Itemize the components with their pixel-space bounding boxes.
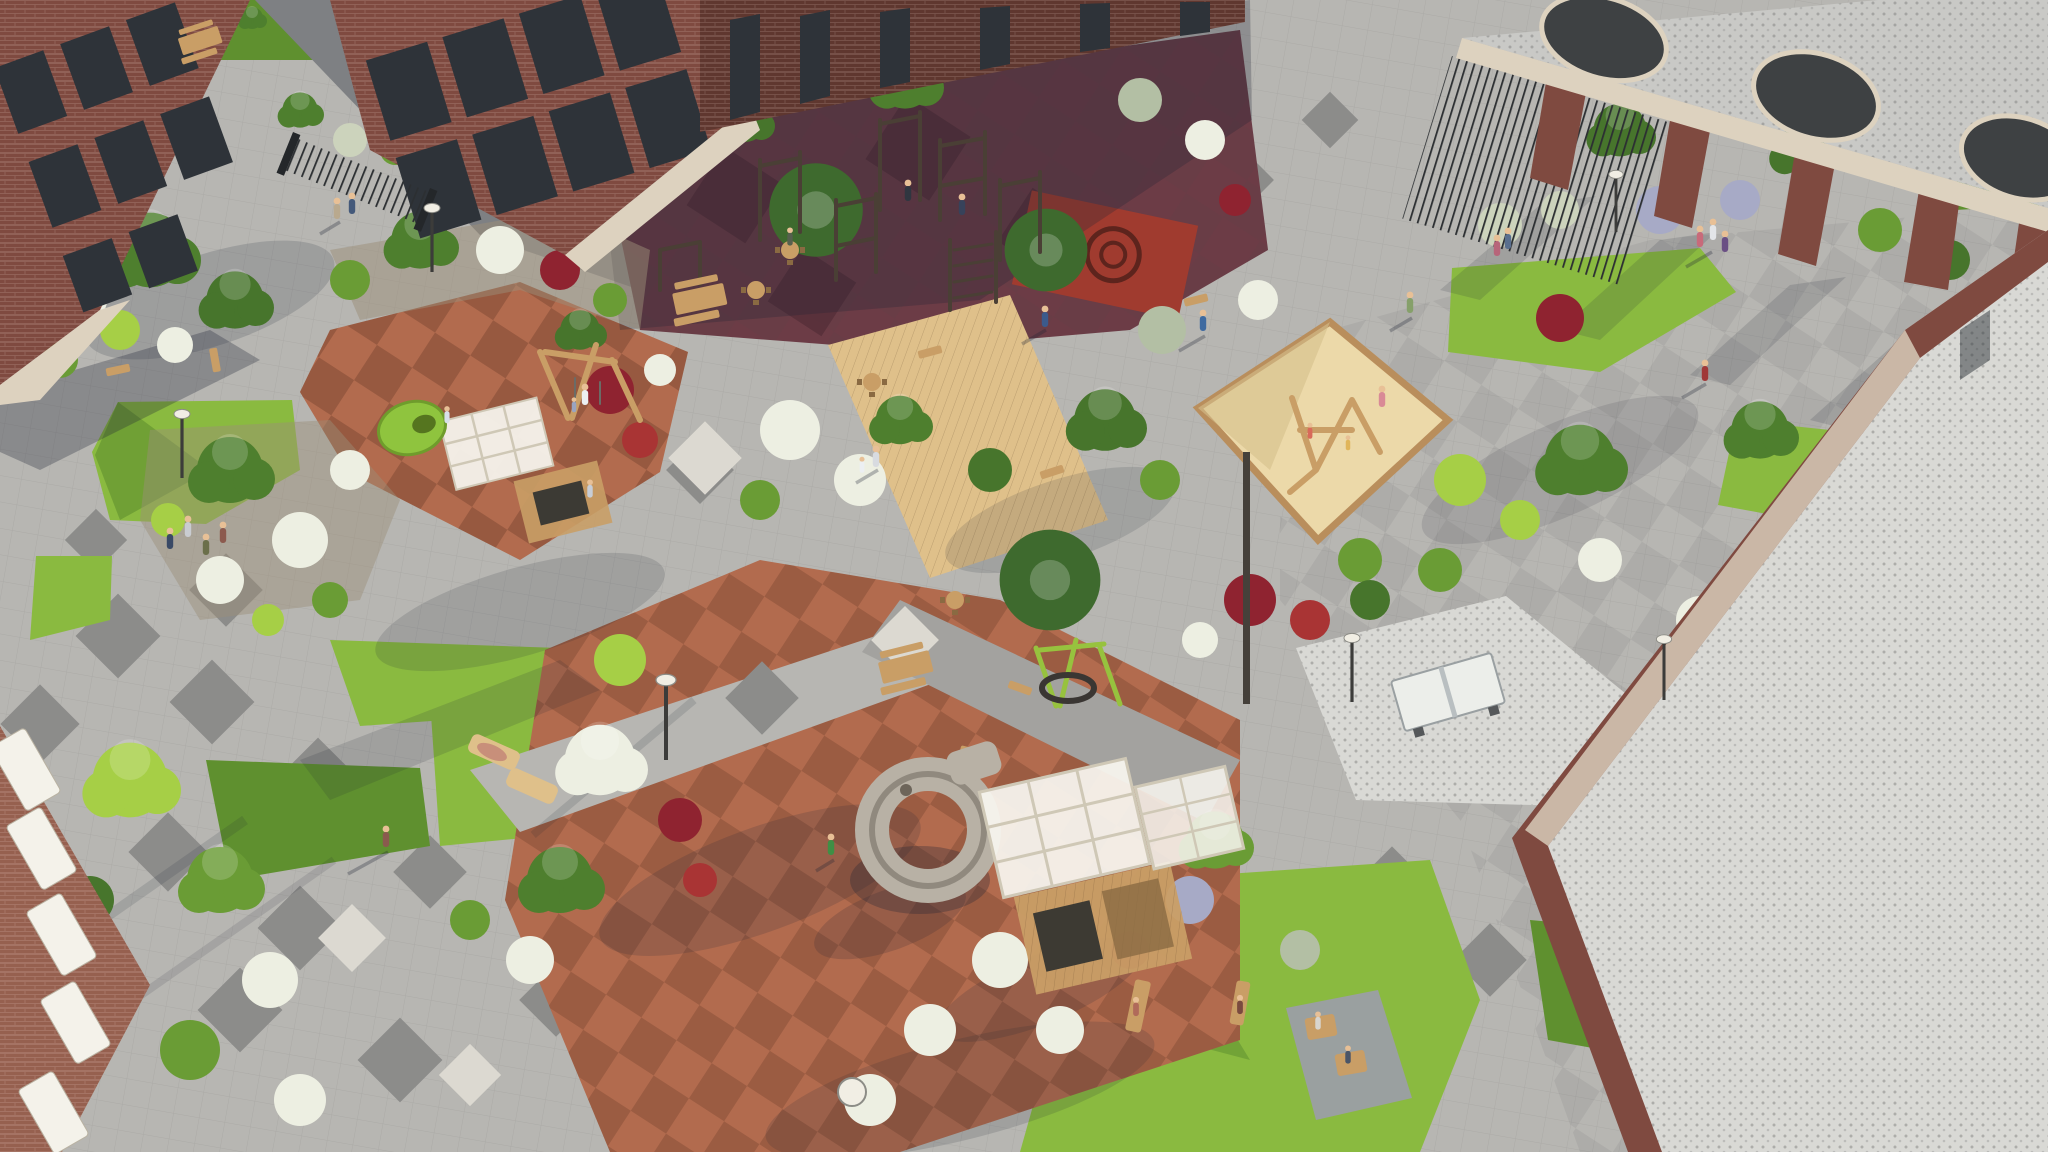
scene-canvas: Aerial architectural rendering of a resi… <box>0 0 2048 1152</box>
lamp-globe <box>838 1078 866 1106</box>
tall-pole <box>1243 452 1250 704</box>
courtyard-rendering: Aerial architectural rendering of a resi… <box>0 0 2048 1152</box>
